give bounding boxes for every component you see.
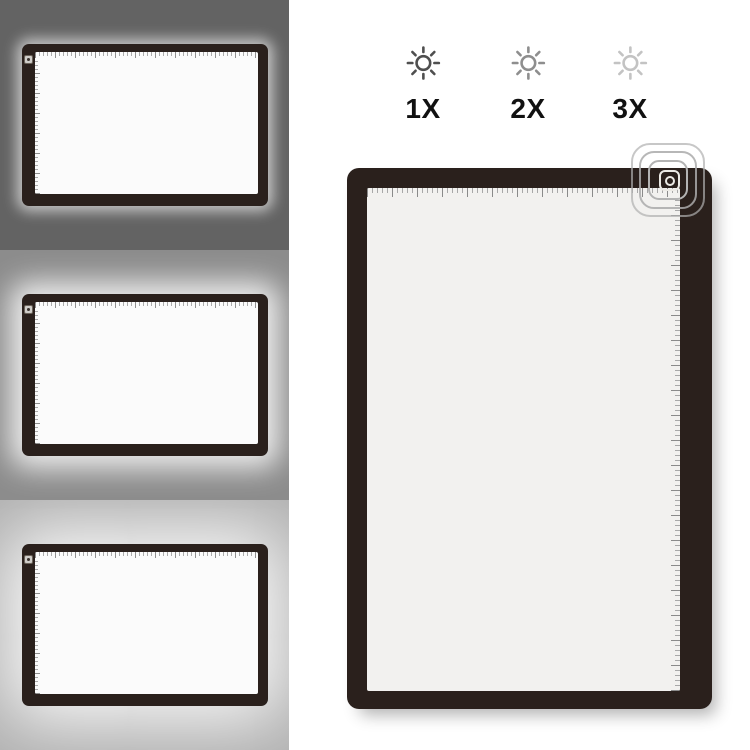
ruler-right (671, 197, 680, 691)
light-pad-small (22, 294, 268, 456)
light-pad-small (22, 544, 268, 706)
power-button-icon (24, 55, 33, 64)
ruler-left (35, 58, 40, 194)
sun-brightness-icon (511, 46, 545, 80)
brightness-preview-column (0, 0, 289, 750)
sun-brightness-icon (406, 46, 440, 80)
power-button-icon (24, 555, 33, 564)
sun-brightness-icon (613, 46, 647, 80)
ruler-top (367, 188, 680, 197)
ruler-top (35, 52, 258, 58)
brightness-level-label: 3X (612, 93, 647, 125)
ruler-left (35, 308, 40, 444)
power-circle-icon (665, 176, 675, 186)
product-image: 1X 2X 3X (0, 0, 750, 750)
brightness-level-3x: 3X (612, 46, 647, 125)
power-touch-button (659, 170, 680, 191)
brightness-level-label: 1X (405, 93, 440, 125)
light-pad-screen (35, 552, 258, 694)
light-pad-screen (35, 52, 258, 194)
ruler-top (35, 302, 258, 308)
brightness-level-label: 2X (510, 93, 545, 125)
ruler-left (35, 558, 40, 694)
ruler-top (35, 552, 258, 558)
power-button-icon (24, 305, 33, 314)
light-pad-small (22, 44, 268, 206)
light-pad-large (347, 168, 712, 709)
brightness-level-2x: 2X (510, 46, 545, 125)
preview-panel-1x (0, 0, 289, 250)
preview-panel-2x (0, 250, 289, 500)
preview-panel-3x (0, 500, 289, 750)
brightness-level-1x: 1X (405, 46, 440, 125)
light-pad-screen (35, 302, 258, 444)
light-pad-screen (367, 188, 680, 691)
